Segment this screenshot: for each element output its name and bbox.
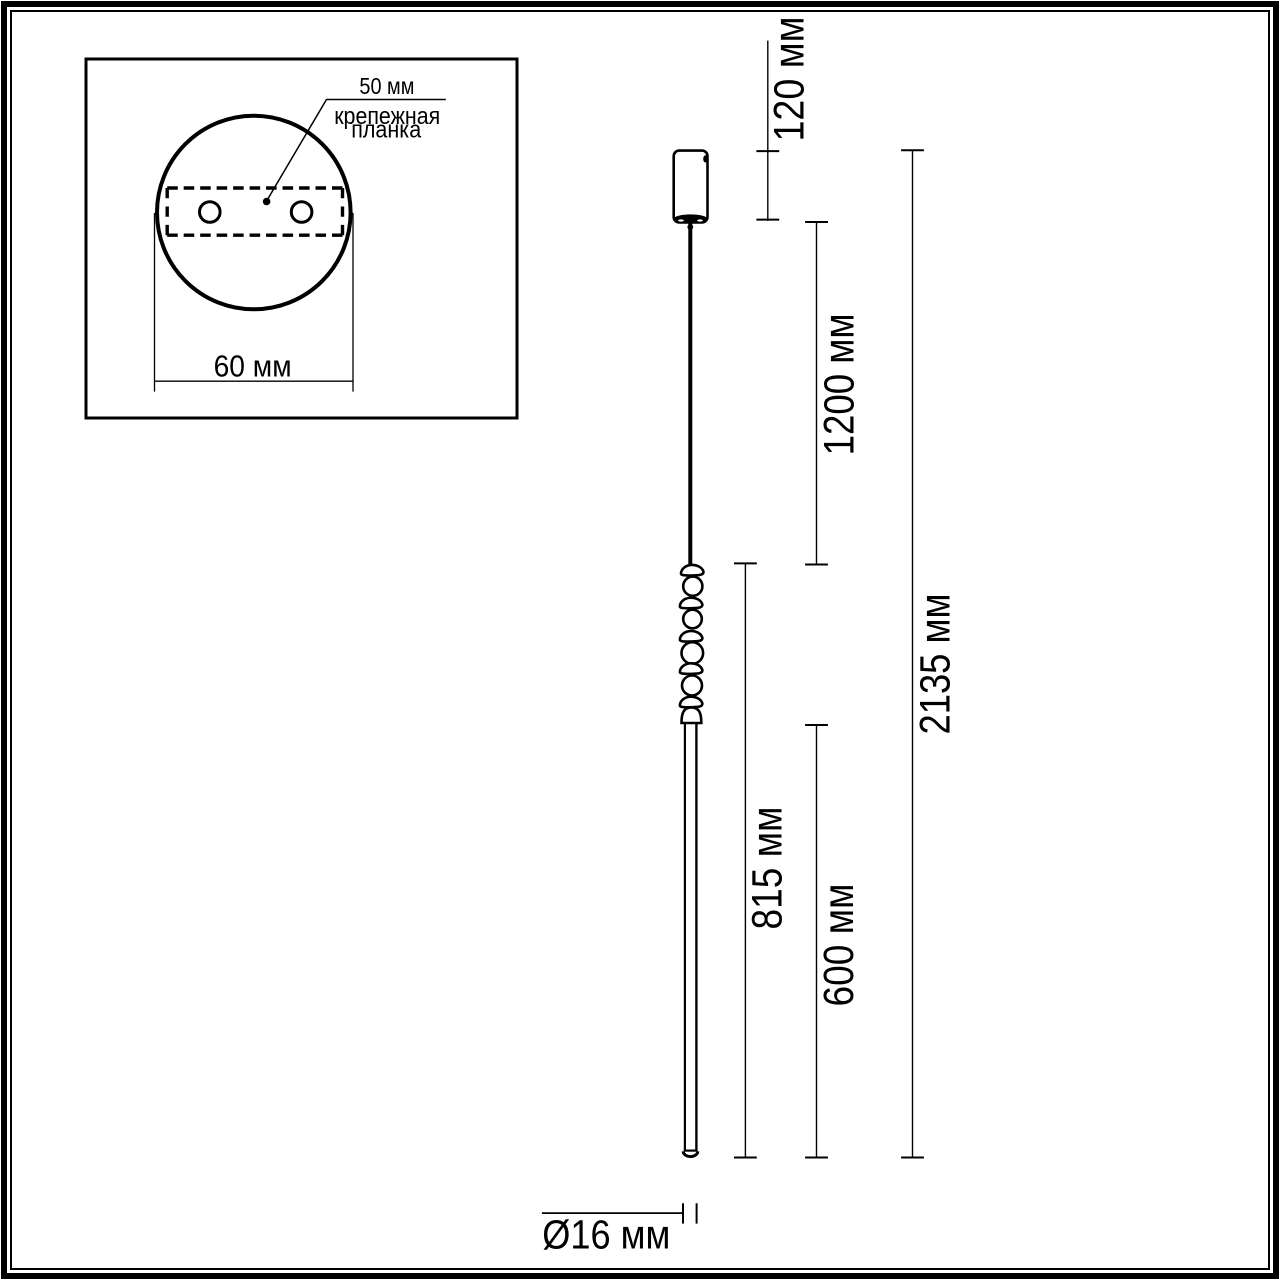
svg-text:планка: планка [351, 117, 421, 144]
svg-text:815 мм: 815 мм [745, 807, 792, 930]
svg-text:2135 мм: 2135 мм [913, 594, 960, 735]
svg-text:120 мм: 120 мм [767, 17, 814, 142]
svg-text:60 мм: 60 мм [214, 350, 292, 384]
svg-text:50 мм: 50 мм [359, 73, 414, 99]
svg-text:Ø16 мм: Ø16 мм [542, 1212, 670, 1258]
svg-text:1200 мм: 1200 мм [816, 313, 863, 455]
svg-text:600 мм: 600 мм [816, 884, 863, 1007]
